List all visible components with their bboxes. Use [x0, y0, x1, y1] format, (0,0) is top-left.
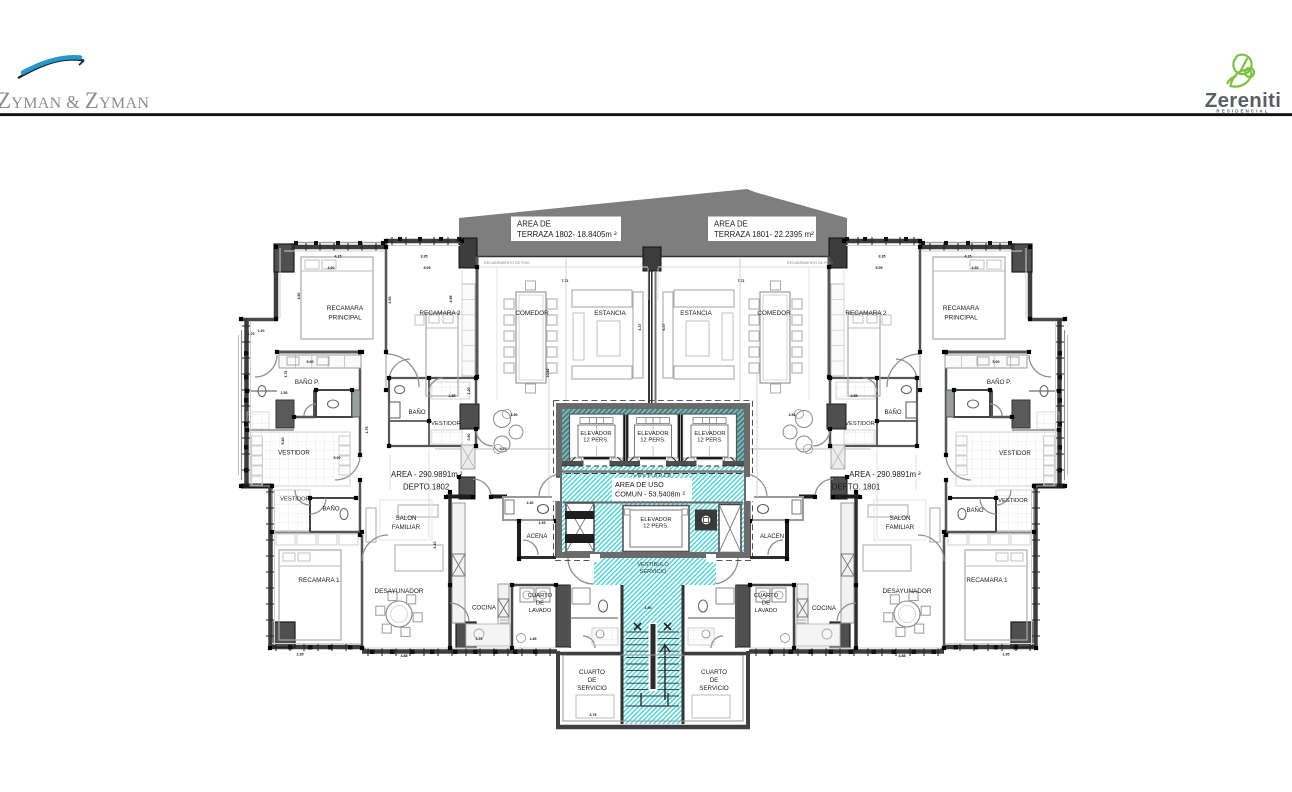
svg-text:AREA DE: AREA DE	[714, 220, 748, 229]
svg-text:PRINCIPAL: PRINCIPAL	[328, 315, 362, 322]
svg-text:6.37: 6.37	[638, 324, 642, 331]
svg-text:1.70: 1.70	[476, 637, 483, 641]
svg-text:RECAMARA: RECAMARA	[943, 305, 980, 312]
svg-text:DE: DE	[762, 601, 770, 607]
svg-text:BAÑO P.: BAÑO P.	[295, 379, 320, 386]
svg-text:ALACEN: ALACEN	[760, 534, 784, 540]
svg-text:DEPTO.1802: DEPTO.1802	[403, 483, 449, 492]
svg-text:COCINA: COCINA	[812, 605, 837, 612]
svg-text:ESTANCIA: ESTANCIA	[594, 310, 626, 317]
svg-text:12 PERS.: 12 PERS.	[583, 438, 609, 444]
svg-text:4.88: 4.88	[899, 654, 906, 658]
svg-text:2.95: 2.95	[297, 653, 304, 657]
svg-text:DE: DE	[536, 601, 544, 607]
svg-text:VESTIBULO: VESTIBULO	[633, 473, 672, 478]
svg-text:1.90: 1.90	[645, 606, 652, 610]
svg-text:10.42: 10.42	[546, 369, 550, 378]
svg-text:PRINCIPAL: PRINCIPAL	[944, 315, 978, 322]
svg-text:0.80: 0.80	[467, 434, 471, 441]
svg-text:1.20: 1.20	[258, 329, 265, 333]
svg-text:DE: DE	[710, 677, 719, 684]
svg-text:AREA - 290.9891m ²: AREA - 290.9891m ²	[391, 470, 463, 479]
svg-text:COCINA: COCINA	[472, 605, 497, 612]
svg-text:RESIDENCIAL: RESIDENCIAL	[1216, 109, 1269, 114]
svg-text:SERVICIO: SERVICIO	[699, 685, 729, 692]
svg-text:ZYMAN & ZYMAN: ZYMAN & ZYMAN	[0, 88, 149, 113]
svg-text:4.60: 4.60	[328, 266, 335, 270]
svg-text:4.98: 4.98	[449, 296, 453, 303]
svg-text:12 PERS.: 12 PERS.	[697, 438, 723, 444]
svg-text:5.00: 5.00	[307, 360, 314, 364]
svg-text:4.15: 4.15	[335, 255, 342, 259]
svg-text:2.85: 2.85	[851, 394, 858, 398]
svg-text:1.20: 1.20	[467, 388, 471, 395]
svg-text:RECAMARA: RECAMARA	[327, 305, 364, 312]
svg-text:3.50: 3.50	[511, 413, 518, 417]
svg-text:DEPTO. 1801: DEPTO. 1801	[832, 483, 880, 492]
svg-text:6.37: 6.37	[662, 324, 666, 331]
svg-text:CUARTO: CUARTO	[701, 669, 727, 676]
svg-text:ACENA: ACENA	[527, 534, 548, 540]
svg-text:ELEVADOR: ELEVADOR	[640, 517, 671, 523]
svg-text:ESTANCIA: ESTANCIA	[680, 310, 712, 317]
svg-text:4.50: 4.50	[297, 293, 301, 300]
svg-text:6.10: 6.10	[433, 542, 437, 549]
svg-text:1.75: 1.75	[365, 427, 369, 434]
svg-text:3.35: 3.35	[879, 255, 886, 259]
svg-text:FAMILIAR: FAMILIAR	[392, 524, 421, 531]
svg-text:5.05: 5.05	[424, 266, 431, 270]
svg-text:COMUN - 53.5408m ²: COMUN - 53.5408m ²	[615, 490, 686, 499]
svg-text:3.50: 3.50	[789, 413, 796, 417]
svg-text:1.50: 1.50	[281, 391, 288, 395]
svg-text:4.15: 4.15	[965, 255, 972, 259]
svg-text:ELEVADOR: ELEVADOR	[637, 431, 668, 437]
svg-text:2.95: 2.95	[1003, 653, 1010, 657]
svg-text:TERRAZA 1801- 22.2395 m²: TERRAZA 1801- 22.2395 m²	[714, 230, 814, 239]
svg-text:LAVADO: LAVADO	[529, 608, 552, 614]
svg-text:AREA DE USO: AREA DE USO	[615, 480, 664, 489]
svg-text:5.40: 5.40	[281, 438, 285, 445]
svg-text:AREA DE: AREA DE	[517, 220, 551, 229]
svg-text:SERVICIO: SERVICIO	[577, 685, 607, 692]
svg-text:RECAMARA 2: RECAMARA 2	[845, 310, 887, 317]
svg-text:SERVICIO: SERVICIO	[640, 569, 667, 575]
svg-text:3.79: 3.79	[590, 713, 597, 717]
svg-text:COMEDOR: COMEDOR	[515, 310, 549, 317]
svg-text:5.00: 5.00	[993, 360, 1000, 364]
svg-text:RECAMARA 1: RECAMARA 1	[966, 577, 1008, 584]
svg-text:RECAMARA 1: RECAMARA 1	[298, 577, 340, 584]
svg-text:TERRAZA 1802- 18.8405m ²: TERRAZA 1802- 18.8405m ²	[517, 230, 617, 239]
svg-text:DESAYUNADOR: DESAYUNADOR	[883, 588, 932, 595]
svg-text:1.70: 1.70	[248, 332, 255, 336]
svg-text:5.00: 5.00	[334, 456, 341, 460]
svg-text:12 PERS.: 12 PERS.	[643, 524, 669, 530]
svg-text:FAMILIAR: FAMILIAR	[886, 524, 915, 531]
svg-text:BAÑO: BAÑO	[884, 409, 901, 416]
svg-text:ELEVADOR: ELEVADOR	[580, 431, 611, 437]
svg-text:4.70: 4.70	[500, 447, 507, 451]
svg-text:CUARTO: CUARTO	[754, 593, 779, 599]
svg-text:2.85: 2.85	[449, 394, 456, 398]
svg-text:CUARTO: CUARTO	[579, 669, 605, 676]
svg-text:DESAYUNADOR: DESAYUNADOR	[375, 588, 424, 595]
svg-text:5.05: 5.05	[876, 266, 883, 270]
svg-text:12 PERS.: 12 PERS.	[640, 438, 666, 444]
svg-text:BAÑO: BAÑO	[408, 409, 425, 416]
svg-text:BAÑO: BAÑO	[966, 507, 983, 514]
svg-text:7.71: 7.71	[562, 279, 569, 283]
svg-text:RECUBRIMIENTO DE PISO: RECUBRIMIENTO DE PISO	[484, 261, 530, 265]
svg-text:3.35: 3.35	[421, 255, 428, 259]
svg-text:CUARTO: CUARTO	[528, 593, 553, 599]
svg-text:VESTIDOR: VESTIDOR	[280, 497, 310, 503]
svg-text:VESTIBULO: VESTIBULO	[637, 562, 669, 568]
svg-text:LAVADO: LAVADO	[755, 608, 778, 614]
svg-text:RECUBRIMIENTO DE PISO: RECUBRIMIENTO DE PISO	[787, 261, 833, 265]
svg-text:1.76: 1.76	[284, 371, 288, 378]
svg-text:DE: DE	[588, 677, 597, 684]
svg-text:1.93: 1.93	[539, 521, 546, 525]
svg-text:BAÑO: BAÑO	[322, 506, 339, 513]
svg-text:VESTIDOR: VESTIDOR	[431, 421, 461, 427]
svg-text:RECAMARA 2: RECAMARA 2	[419, 310, 461, 317]
svg-text:4.60: 4.60	[972, 266, 979, 270]
svg-text:VESTIDOR: VESTIDOR	[998, 498, 1028, 504]
svg-text:6.93: 6.93	[388, 297, 392, 304]
svg-text:2.40: 2.40	[527, 501, 534, 505]
svg-text:BAÑO P.: BAÑO P.	[987, 379, 1012, 386]
svg-text:VESTIDOR: VESTIDOR	[278, 450, 310, 457]
svg-text:VESTIDOR: VESTIDOR	[845, 421, 875, 427]
svg-text:AREA - 290.9891m ²: AREA - 290.9891m ²	[849, 470, 921, 479]
svg-text:VESTIDOR: VESTIDOR	[999, 450, 1031, 457]
svg-text:SALON: SALON	[890, 515, 911, 522]
svg-text:SALON: SALON	[396, 515, 417, 522]
svg-text:COMEDOR: COMEDOR	[757, 310, 791, 317]
svg-text:ELEVADOR: ELEVADOR	[694, 431, 725, 437]
svg-text:7.71: 7.71	[738, 279, 745, 283]
svg-text:4.88: 4.88	[401, 654, 408, 658]
svg-text:1.85: 1.85	[530, 637, 537, 641]
